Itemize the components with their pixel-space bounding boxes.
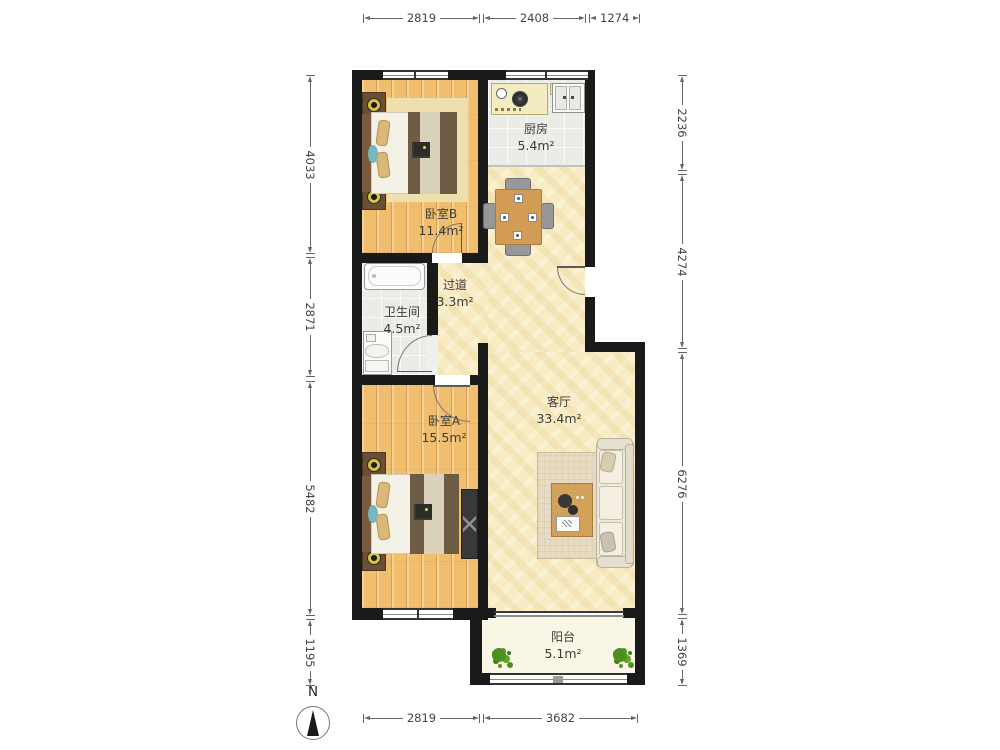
room-area: 33.4m² (514, 410, 604, 427)
room-area: 5.1m² (518, 645, 608, 662)
wall (635, 342, 645, 685)
wall (623, 608, 635, 618)
north-needle-icon (307, 710, 319, 736)
dim-left-1: 4033 (303, 75, 317, 254)
room-area: 4.5m² (357, 320, 447, 337)
stove-dial-icon (496, 88, 507, 99)
balcony-slider-track (494, 615, 624, 617)
bed-accent (368, 505, 378, 523)
room-name: 客厅 (514, 394, 604, 410)
entry-opening (585, 267, 595, 297)
window-mullion (545, 70, 547, 80)
stove-burner-icon (512, 91, 528, 107)
bathtub-drain (372, 274, 376, 278)
sofa-backrest (625, 444, 634, 564)
window-mullion (417, 608, 419, 620)
bed-tray-dot (425, 508, 428, 511)
place-setting (528, 213, 537, 222)
bed-tray (412, 142, 430, 158)
dim-top-2: 2408 (483, 11, 586, 25)
stove-vent (495, 108, 521, 111)
north-label: N (308, 684, 318, 700)
room-name: 过道 (410, 277, 500, 293)
wall (352, 70, 362, 620)
wall (478, 343, 488, 620)
toilet (365, 360, 389, 372)
room-label-bathroom: 卫生间 4.5m² (357, 304, 447, 337)
dim-left-3: 5482 (303, 381, 317, 616)
wall (352, 375, 435, 385)
tv-unit (461, 489, 478, 559)
room-label-balcony: 阳台 5.1m² (518, 629, 608, 662)
sofa-cushion (599, 486, 623, 520)
room-label-living: 客厅 33.4m² (514, 394, 604, 427)
bed-accent (368, 145, 378, 163)
bed-tray (414, 504, 432, 520)
place-setting (513, 231, 522, 240)
dim-bottom-2: 3682 (483, 711, 638, 725)
room-name: 厨房 (491, 121, 581, 137)
wall (488, 608, 496, 618)
dim-right-1: 2236 (675, 75, 689, 171)
dim-top-3: 1274 (589, 11, 638, 25)
bed-tray-dot (423, 146, 426, 149)
room-name: 卧室B (396, 206, 486, 222)
balcony-window-latch (553, 676, 563, 683)
plant-icon (492, 648, 506, 662)
wall (462, 253, 488, 263)
cabinet-handle (563, 96, 566, 99)
entry-door-leaf (557, 266, 585, 268)
wall (362, 253, 432, 263)
room-area: 5.4m² (491, 137, 581, 154)
dim-right-2: 4274 (675, 174, 689, 349)
dim-bottom-1: 2819 (363, 711, 480, 725)
room-label-bedroomB: 卧室B 11.4m² (396, 206, 486, 239)
floorplan-canvas: 卧室B 11.4m² 厨房 5.4m² 过道 3.3m² 卫生间 4.5m² 卧… (0, 0, 1000, 750)
balcony-slider (494, 611, 624, 613)
dim-top-1: 2819 (363, 11, 480, 25)
dim-left-2: 2871 (303, 257, 317, 377)
tray-sprig (562, 520, 572, 527)
wall (585, 70, 595, 352)
lamp-icon (367, 98, 381, 112)
room-name: 卫生间 (357, 304, 447, 320)
room-name: 阳台 (518, 629, 608, 645)
teacup-icon (568, 505, 578, 515)
dining-chair (541, 203, 554, 229)
table-dot (576, 496, 579, 499)
dim-right-4: 1369 (675, 618, 689, 686)
dim-right-3: 6276 (675, 352, 689, 615)
window-mullion (414, 70, 416, 80)
room-area: 15.5m² (399, 429, 489, 446)
room-name: 卧室A (399, 413, 489, 429)
place-setting (500, 213, 509, 222)
dim-left-4: 1195 (303, 619, 317, 686)
bathroom-door-leaf (397, 371, 432, 373)
table-dot (581, 496, 584, 499)
room-label-kitchen: 厨房 5.4m² (491, 121, 581, 154)
plant-icon (613, 648, 627, 662)
kitchen-window (506, 70, 588, 80)
room-area: 11.4m² (396, 222, 486, 239)
sink-bowl (365, 344, 389, 358)
kitchen-dining-divider (488, 165, 585, 167)
room-label-bedroomA: 卧室A 15.5m² (399, 413, 489, 446)
place-setting (514, 194, 523, 203)
lamp-icon (367, 458, 381, 472)
cabinet-handle (571, 96, 574, 99)
bedroomA-door-leaf (433, 385, 470, 387)
